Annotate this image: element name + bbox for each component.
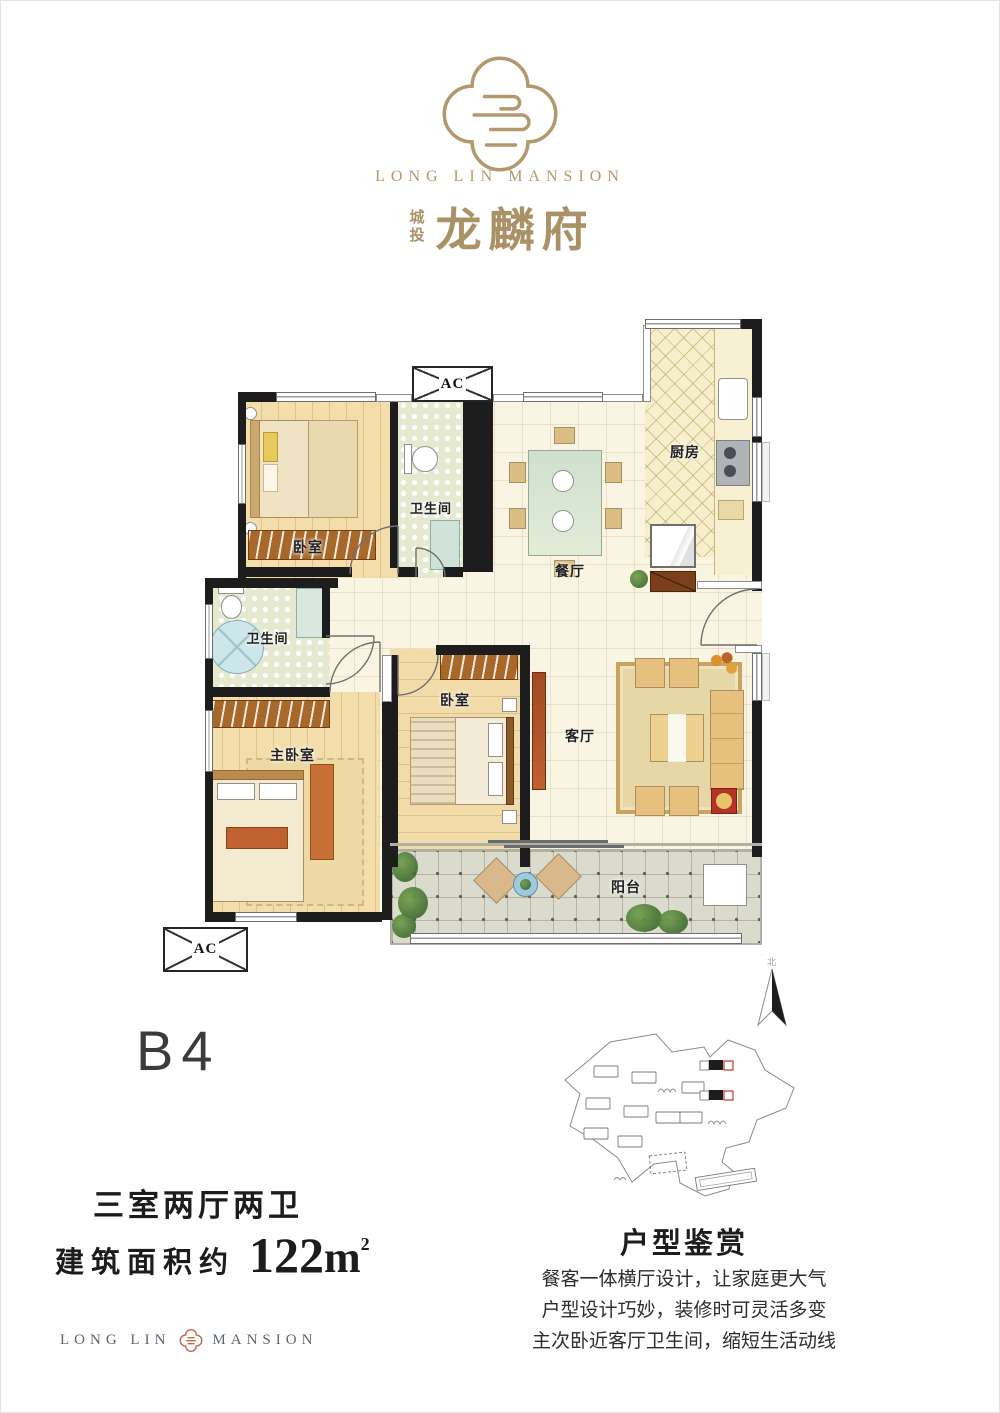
site-building-highlight-2 <box>700 1090 733 1100</box>
footer-brand-left: LONG LIN <box>60 1332 170 1349</box>
footer-brand-right: MANSION <box>212 1332 317 1349</box>
unit-area-sup: 2 <box>361 1234 370 1255</box>
footer-emblem-icon <box>179 1328 203 1353</box>
flyer-page: LONG LIN MANSION 城投 龙麟府 <box>0 0 1000 1413</box>
unit-area-number: 122 <box>249 1226 324 1284</box>
door-bedroom-middle <box>398 655 438 695</box>
door-entry <box>701 589 757 645</box>
unit-layout-text: 三室两厅两卫 <box>93 1180 303 1225</box>
unit-area-prefix: 建筑面积约 <box>55 1239 235 1281</box>
label-bathroom-top: 卫生间 <box>396 498 466 517</box>
review-line-3: 主次卧近客厅卫生间，缩短生活动线 <box>500 1326 868 1357</box>
site-building-highlight-1 <box>700 1060 733 1070</box>
review-title: 户型鉴赏 <box>534 1220 834 1262</box>
review-line-2: 户型设计巧妙，装修时可灵活多变 <box>500 1295 868 1326</box>
label-kitchen: 厨房 <box>645 442 725 462</box>
floorplan: AC AC 卧室 卫生间 餐厅 厨房 卫生间 主卧室 卧室 客厅 阳台 <box>158 312 808 974</box>
unit-area-line: 建筑面积约 122m2 <box>55 1226 370 1284</box>
brand-prefix-cn: 城投 <box>406 209 427 245</box>
door-bathroom-top <box>416 548 445 577</box>
site-building-dashed <box>649 1152 687 1174</box>
footer-brand: LONG LIN MANSION <box>60 1328 317 1353</box>
label-bathroom-left: 卫生间 <box>205 628 330 647</box>
north-arrow-label: 北 <box>767 957 776 967</box>
label-living: 客厅 <box>530 726 630 746</box>
brand-emblem-cloud-icon <box>437 50 563 178</box>
site-building-slanted <box>695 1168 756 1190</box>
label-balcony: 阳台 <box>576 877 676 897</box>
review-lines: 餐客一体横厅设计，让家庭更大气 户型设计巧妙，装修时可灵活多变 主次卧近客厅卫生… <box>500 1264 868 1357</box>
unit-area-unit: m <box>324 1232 361 1283</box>
north-arrow: 北 <box>750 953 794 1033</box>
label-bedroom-middle: 卧室 <box>390 690 520 710</box>
brand-name-en: LONG LIN MANSION <box>330 168 670 186</box>
door-bedroom-top <box>350 526 398 574</box>
unit-code: B4 <box>136 1018 221 1083</box>
label-master-bedroom: 主卧室 <box>205 745 380 765</box>
brand-name-cn-group: 城投 龙麟府 <box>330 194 670 260</box>
label-dining: 餐厅 <box>538 561 602 581</box>
brand-name-cn: 龙麟府 <box>436 194 595 260</box>
site-buildings <box>584 1066 704 1147</box>
site-plan-map <box>558 1030 808 1215</box>
review-line-1: 餐客一体横厅设计，让家庭更大气 <box>500 1264 868 1295</box>
label-bedroom-top: 卧室 <box>268 537 348 557</box>
site-trees <box>614 1089 726 1180</box>
